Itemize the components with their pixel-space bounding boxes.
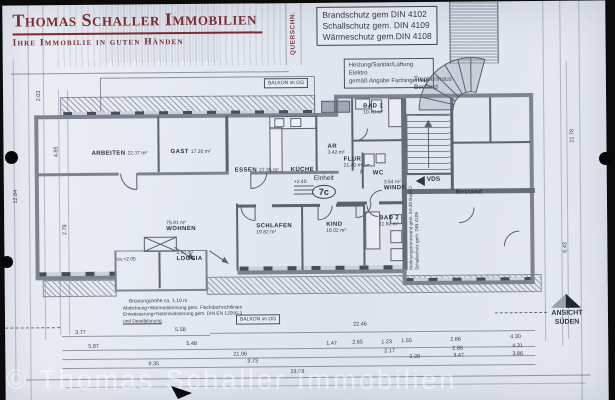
photo-watermark: © Thomas Schaller Immobilien	[6, 364, 457, 396]
photo-background: Thomas Schaller Immobilien Ihre Immobili…	[0, 0, 615, 400]
room-label-gast: GAST17.20 m²	[170, 140, 210, 158]
room-label-essen: ESSEN27.35 m²	[235, 158, 279, 176]
dimension-label-vertical: 6.43	[562, 242, 568, 253]
dimension-label: 1.23	[381, 339, 392, 345]
dimension-label: 2.17	[384, 348, 395, 354]
dimension-label: 22.46	[353, 321, 367, 327]
door-arc	[241, 206, 255, 220]
floorplan-sheet: Thomas Schaller Immobilien Ihre Immobili…	[2, 0, 608, 400]
punch-hole-icon	[1, 256, 13, 268]
dimension-label-vertical: 2.78	[62, 224, 68, 235]
room-label-wc: WC	[373, 161, 384, 179]
bruestung-note: Brüstungshöhe ca. 1.10 m	[129, 298, 187, 305]
room-label-ar: AR3.42 m²	[327, 144, 344, 156]
unit-number: 7c	[312, 185, 336, 199]
dimension-label-vertical: 12.84	[13, 190, 19, 204]
sheet-content: Thomas Schaller Immobilien Ihre Immobili…	[2, 0, 608, 400]
door-arc	[504, 231, 519, 246]
cursor-arrow-icon	[170, 385, 194, 400]
door-arc	[121, 173, 137, 189]
door-arc	[459, 208, 474, 223]
dimension-label: 5.48	[186, 341, 197, 347]
room-label-loggia: 4.70 m²LOGGIA	[176, 250, 202, 262]
room-label-windf-: 3.54 m²WINDF.	[384, 179, 407, 191]
punch-hole-icon	[599, 152, 612, 165]
dimension-label: 2.86	[450, 337, 461, 343]
dimension-label: 5.58	[175, 327, 186, 333]
room-label-kind: KIND16.02 m²	[326, 222, 346, 234]
door-arc	[355, 128, 367, 140]
vds-arrow-icon	[416, 176, 425, 186]
room-label-küche: KÜCHE	[291, 158, 314, 176]
room-label-arbeiten: ARBEITEN22.37 m²	[91, 141, 147, 159]
room-label-bestand: Bestand	[456, 180, 483, 198]
ansicht-sueden-label: ANSICHT SÜDEN	[545, 310, 589, 328]
door-arc	[318, 206, 332, 220]
arrowhead	[221, 257, 228, 264]
dimension-label: 4.30	[510, 334, 521, 340]
dimension-label-vertical: 2.03	[36, 91, 42, 102]
room-label-bad-2: BAD 211.82 m²	[379, 215, 399, 227]
level-marker: ca.+2.05	[116, 256, 135, 262]
punch-hole-icon	[5, 151, 18, 164]
room-label-bad-1: BAD 110.70 m²	[363, 103, 383, 115]
curved-stair	[419, 58, 485, 110]
abdichtung-note: Abdichtung+Wärmedämmung gem. Flachdachri…	[123, 306, 242, 326]
dimension-label: 1.47	[326, 341, 337, 347]
door-arc	[370, 190, 382, 202]
room-label-wohnen: 75.91 m²WOHNEN	[166, 220, 196, 232]
level-marker: +2.40	[294, 179, 307, 185]
vds-label: VDS	[427, 176, 440, 183]
room-label-schlafen: SCHLAFEN19.82 m²	[256, 223, 292, 235]
unit-label: Einheit	[312, 175, 336, 182]
room-label-flur: FLUR21.40 m²	[344, 156, 364, 168]
wall-note: Wohnungstrennwand gem. Art.30 BayBO Scha…	[408, 186, 422, 270]
door-arc	[356, 202, 371, 217]
ansicht-triangle-dark	[566, 294, 581, 308]
unit-badge: Einheit 7c	[312, 175, 336, 200]
dimension-label: 2.65	[352, 340, 363, 346]
arrowhead	[424, 120, 432, 127]
door-arc	[367, 205, 378, 216]
dimension-label: 1.55	[401, 338, 412, 344]
dimension-label-vertical: 4.85	[53, 146, 59, 157]
dimension-label-vertical: 21.78	[569, 129, 575, 143]
